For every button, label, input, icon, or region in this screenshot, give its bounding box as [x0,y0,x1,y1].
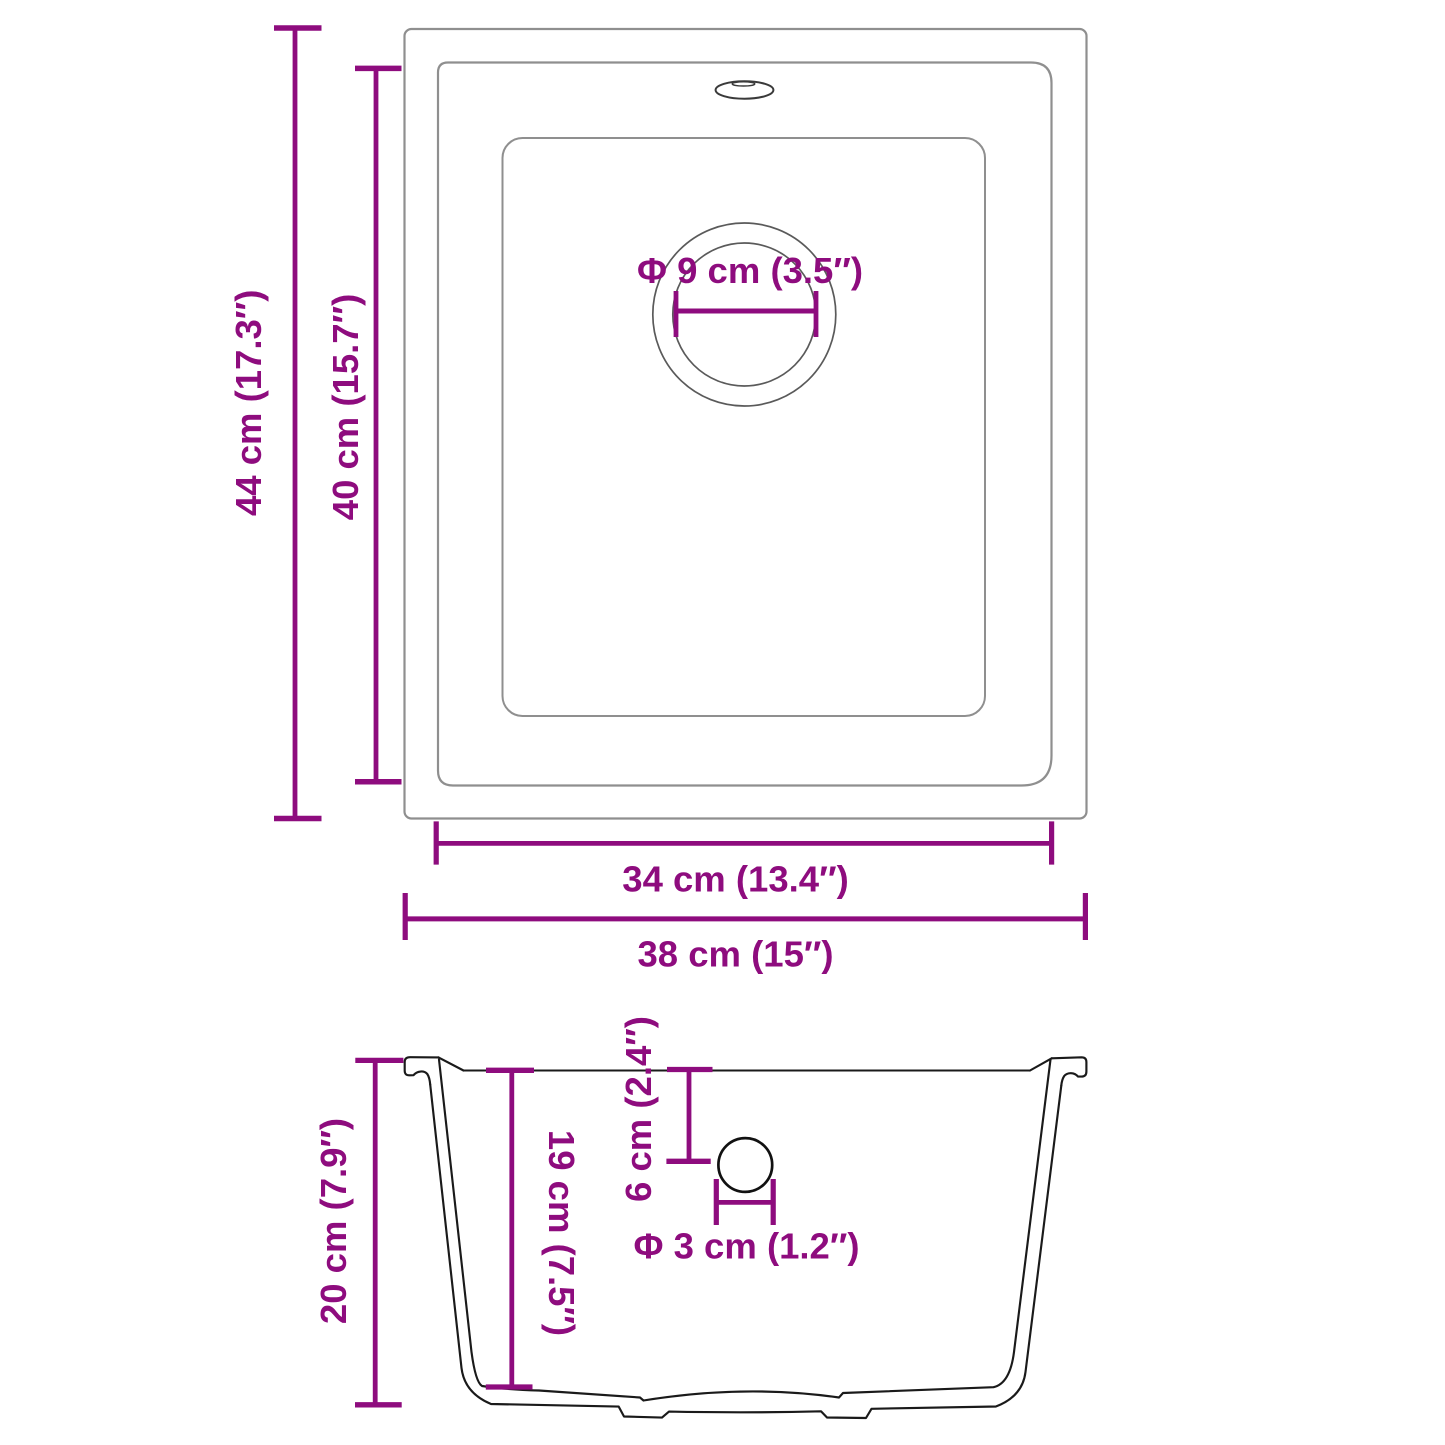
svg-text:19 cm (7.5″): 19 cm (7.5″) [541,1130,582,1336]
svg-text:44 cm (17.3″): 44 cm (17.3″) [228,290,269,516]
svg-text:38 cm (15″): 38 cm (15″) [637,933,833,974]
svg-text:Φ 3 cm (1.2″): Φ 3 cm (1.2″) [634,1226,860,1267]
svg-text:34 cm (13.4″): 34 cm (13.4″) [622,858,848,899]
svg-text:20 cm (7.9″): 20 cm (7.9″) [313,1118,354,1324]
svg-text:6 cm (2.4″): 6 cm (2.4″) [618,1016,659,1202]
svg-text:Φ 9 cm (3.5″): Φ 9 cm (3.5″) [637,250,863,291]
svg-text:40 cm (15.7″): 40 cm (15.7″) [325,294,366,520]
